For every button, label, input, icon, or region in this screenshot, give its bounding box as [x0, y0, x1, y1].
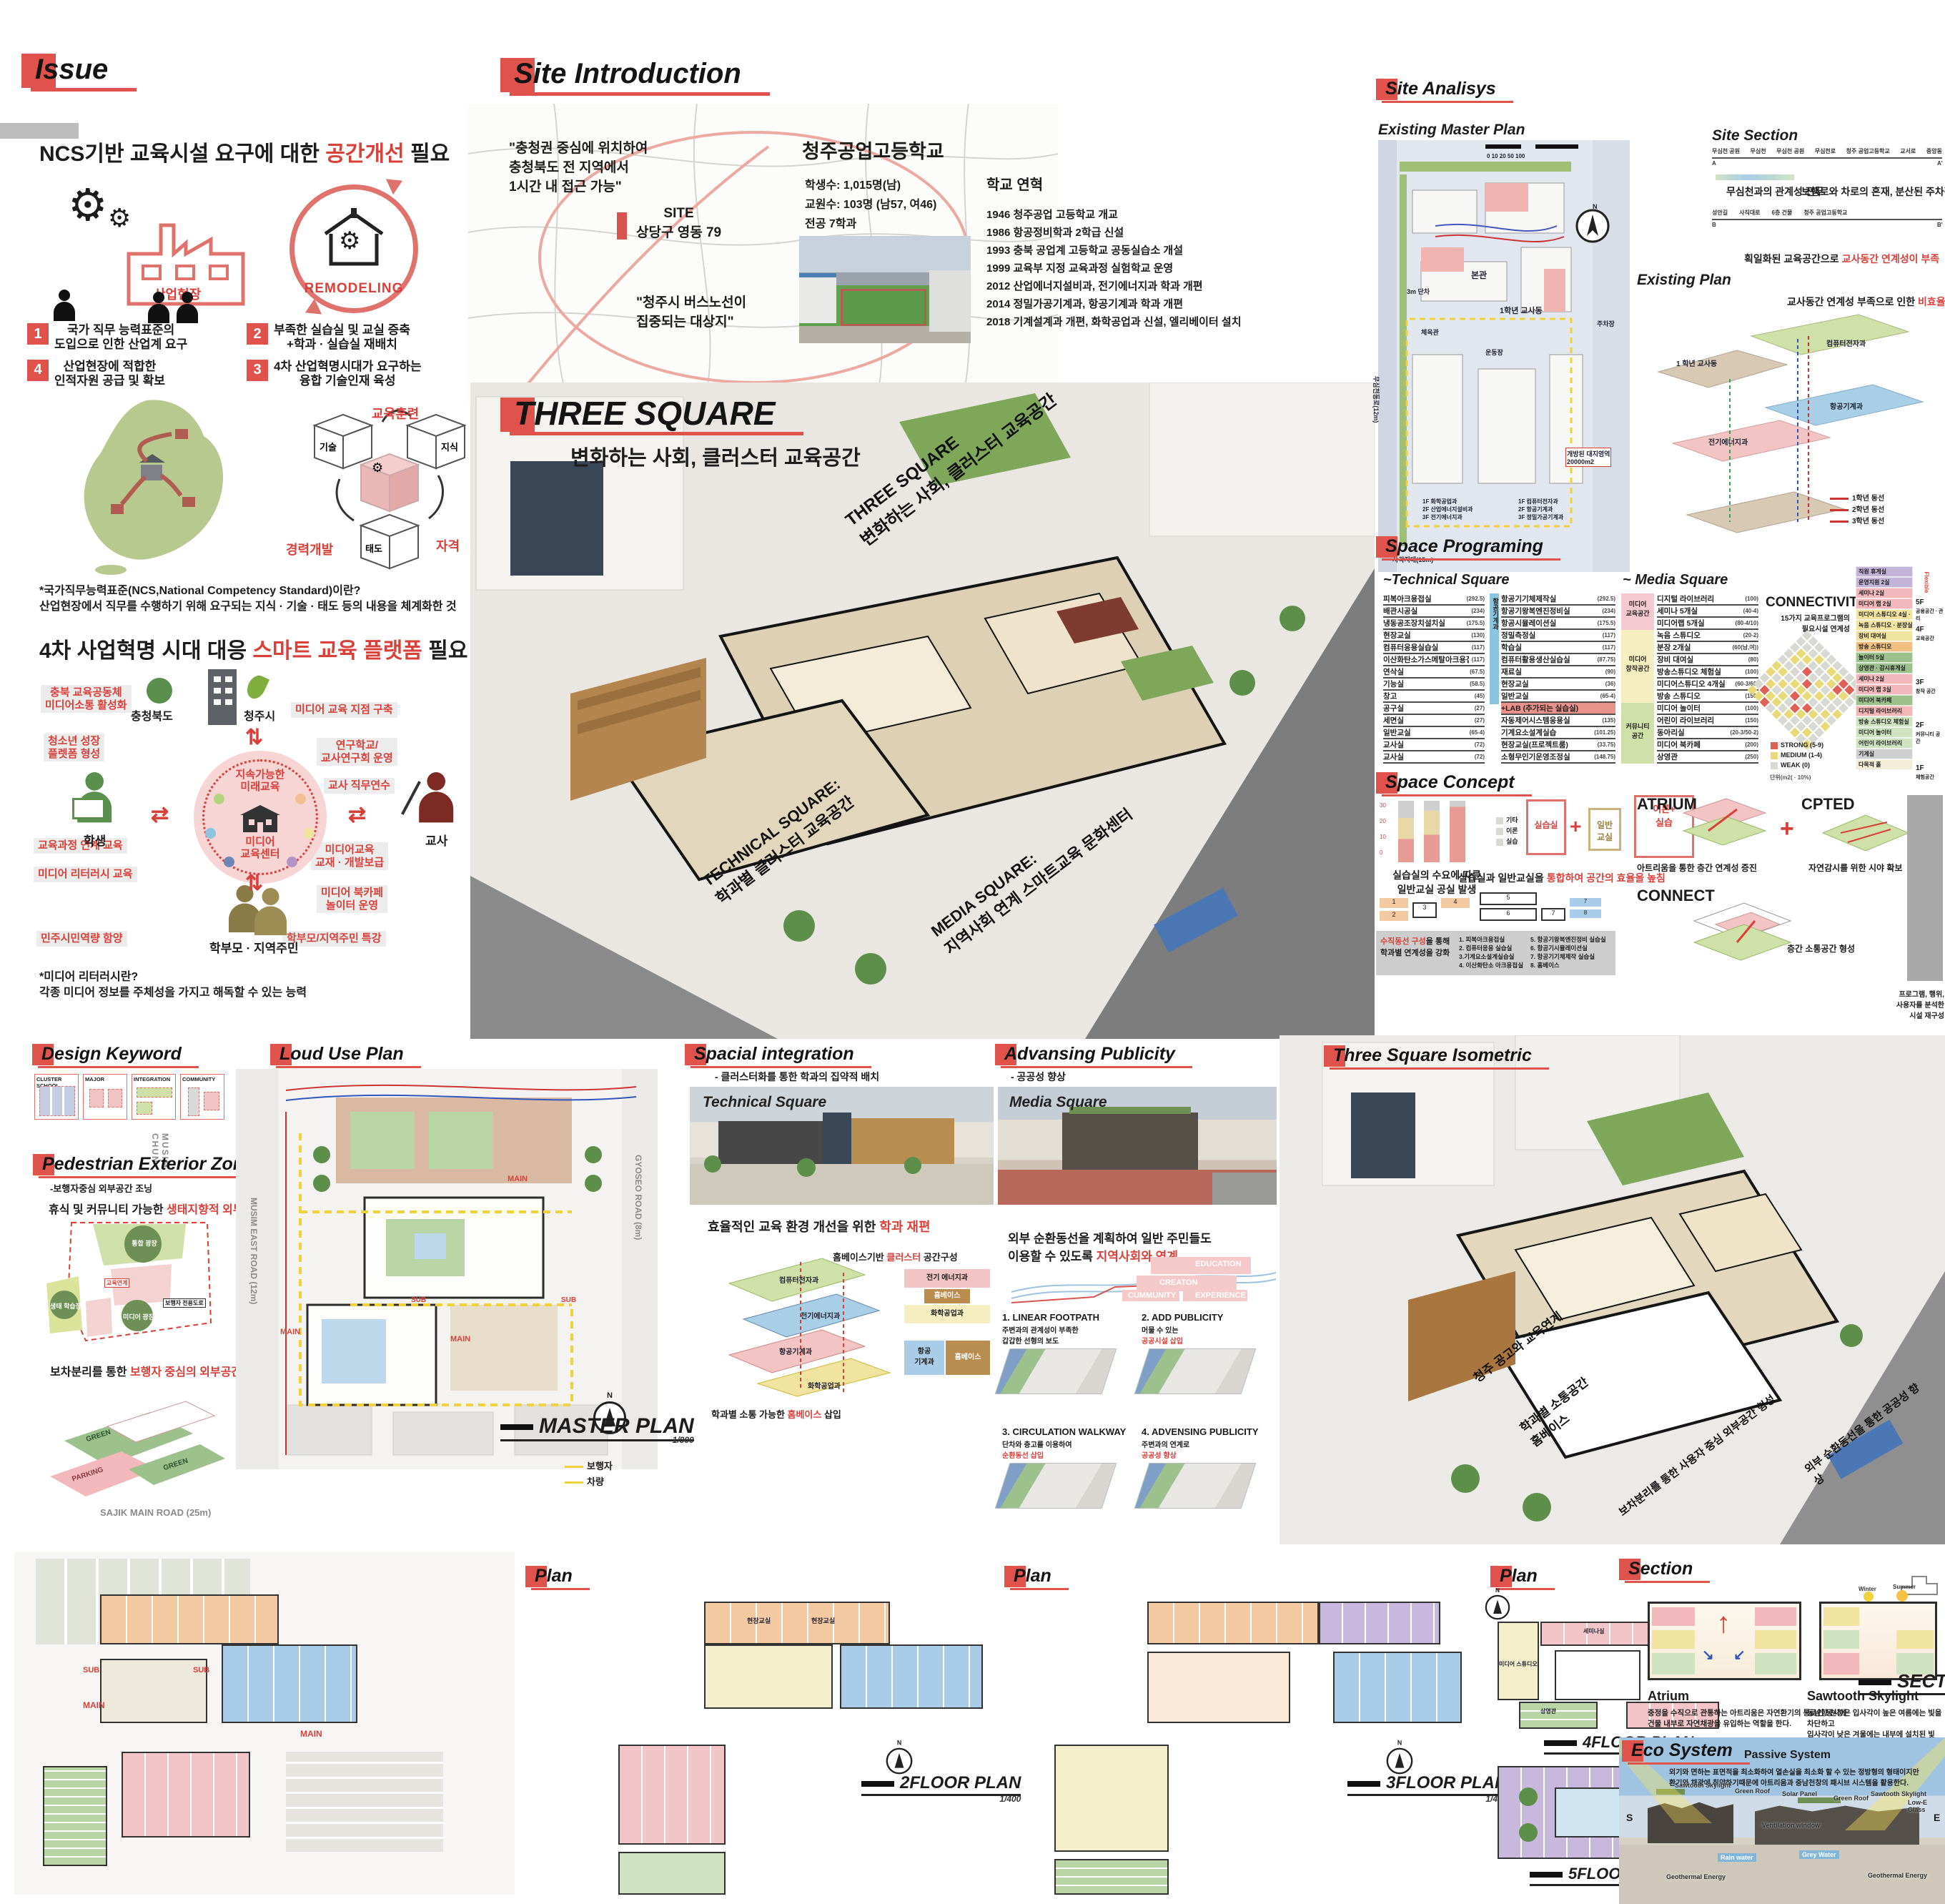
- plan3-label: 3FLOOR PLAN 1/400: [1347, 1773, 1507, 1796]
- step-body: 머물 수 있는: [1142, 1324, 1281, 1335]
- stack-room: 미디어 랩 3실: [1856, 684, 1913, 695]
- media-room-table: 디지털 라이브러리 (100) 세미나 5개실 (40-4) 미디어랩 5개실 …: [1657, 593, 1758, 764]
- room-row: 소형무인기운영조정실 (148.75): [1501, 751, 1615, 764]
- vertical-caption: 수직동선 구성을 통해 학과별 연계성을 강화: [1380, 935, 1452, 971]
- history-list: 1946 청주공업 고등학교 개교1986 항공정비학과 2학급 신설1993 …: [986, 206, 1222, 331]
- publicity-step: 1. LINEAR FOOTPATH 주변과의 관계성이 부족한 갑갑한 선형의…: [1002, 1312, 1142, 1426]
- sub-entrance-label: SUB: [83, 1666, 99, 1674]
- history-item: 2014 정밀가공기계과, 항공기계과 학과 개편: [986, 295, 1222, 313]
- room-name: 어린이 라이브러리: [1657, 715, 1714, 726]
- bar-legend: 기타이론실습: [1495, 815, 1518, 847]
- room-name: 동아리실: [1657, 727, 1685, 738]
- connectivity-subtitle: 15가지 교육프로그램의 필요시설 연계성: [1771, 612, 1850, 633]
- publicity-steps: 1. LINEAR FOOTPATH 주변과의 관계성이 부족한 갑갑한 선형의…: [1002, 1312, 1288, 1541]
- cheongju-logo: [244, 673, 269, 702]
- section-building: [0, 110, 16, 123]
- zone-label: 교육공간: [1916, 635, 1934, 642]
- stack-room: 운영지원 2실: [1856, 577, 1913, 588]
- school-photo: [799, 236, 971, 343]
- legend-item: 3학년 동선: [1830, 516, 1884, 528]
- room-row: 방송스튜디오 체험실 (100): [1657, 666, 1758, 679]
- stack-room: 미디어 스튜디오 4실 · 조정실: [1856, 609, 1913, 620]
- ncs-note-body: 산업현장에서 직무를 수행하기 위해 요구되는 지식 · 기술 · 태도 등의 …: [39, 596, 482, 613]
- tree: [704, 1155, 721, 1173]
- room-label: 현장교실: [811, 1616, 835, 1625]
- updown-arrow-icon: ⇅: [245, 725, 263, 750]
- room-name: 미디어 놀이터: [1657, 703, 1701, 714]
- plan-scale: 1/800: [673, 1435, 694, 1445]
- section-tick: 성안길: [1712, 209, 1728, 217]
- road: [1212, 1173, 1277, 1205]
- step-diagram: [1134, 1348, 1257, 1394]
- legend-chip: [1830, 509, 1849, 511]
- legend-line: 8. 홈베이스: [1530, 961, 1606, 970]
- room-area: (27): [1475, 705, 1485, 711]
- room-area: (150): [1745, 717, 1758, 724]
- eco-label-chip: Rain water: [1718, 1853, 1756, 1862]
- platform-heading-post: 필요: [422, 639, 468, 663]
- section1-caption2: 보행로와 차로의 혼재, 분산된 주차장으로인한 비합리적 외부공간: [1801, 184, 1945, 199]
- stack-room: 세미나 2실: [1856, 674, 1913, 684]
- section1-a: A: [1712, 160, 1716, 167]
- floor-label: 3F: [1916, 679, 1924, 686]
- orange-rooms: [1147, 1602, 1319, 1644]
- photo-field: [841, 289, 926, 326]
- platform-tag: 청소년 성장 플렛폼 형성: [44, 734, 104, 761]
- room-name: 상영관: [1657, 751, 1678, 762]
- platform-tag: 교사 직무연수: [324, 778, 395, 794]
- legend-label: MEDIUM (1-4): [1781, 751, 1822, 759]
- room: [1823, 1653, 1859, 1674]
- step-red: 순환동선 삽입: [1002, 1449, 1142, 1460]
- platform-heading: 4차 사업혁명 시대 대응 스마트 교육 플랫폼 필요: [39, 633, 467, 664]
- plan45-header-text: Plan: [1496, 1564, 1555, 1590]
- axon-legend: 1학년 동선 2학년 동선 3학년 동선: [1830, 493, 1884, 528]
- dept-stack2-label: 1F 컴퓨터전자과 2F 항공기계과 3F 정밀가공기계과: [1518, 498, 1563, 521]
- eco-label: Solar Panel: [1782, 1790, 1817, 1797]
- room-name: 항공기왕복엔진정비실: [1501, 606, 1570, 616]
- room-area: (40-4): [1743, 608, 1758, 614]
- block-2: 2: [1380, 911, 1408, 921]
- room-row: 현장교실(프로젝트룸) (33.75): [1501, 739, 1615, 751]
- section2-b2: B': [1937, 222, 1943, 228]
- publicity-step: 3. CIRCULATION WALKWAY 단차와 층고를 이용하여 순환동선…: [1002, 1426, 1142, 1541]
- teacher-icon: [417, 772, 455, 825]
- zone-label: 보행자 전용도로: [163, 1298, 206, 1308]
- legend-dot: [1771, 762, 1778, 769]
- issue-item: 2 부족한 실습실 및 교실 증축 +학과 · 실습실 재배치: [247, 323, 466, 352]
- existing-plan-caption: 교사동간 연계성 부족으로 인한 비효율적 동선: [1787, 295, 1945, 309]
- room-label: 미디어 스튜디오: [1499, 1660, 1538, 1668]
- section-building: [0, 100, 19, 110]
- connect-caption: 층간 소통공간 형성: [1787, 942, 1855, 955]
- platform-tag: 충북 교육공동체 미디어소통 활성화: [41, 685, 132, 713]
- stack-room: 상영관 · 감시휴게실: [1856, 663, 1913, 674]
- connectivity-matrix-wrap: [1764, 647, 1850, 733]
- actor-parents-label: 학부모 · 지역주민: [209, 938, 299, 956]
- room-row: 기계요소설계실습 (101.25): [1501, 727, 1615, 739]
- block-8a: 7: [1570, 898, 1601, 907]
- legend-line: 5. 항공기왕복엔진정비 실습실: [1530, 935, 1606, 944]
- room-row: 장비 대여실 (80): [1657, 654, 1758, 666]
- caption-red: 홈베이스: [788, 1409, 822, 1420]
- legend-label: 보행자: [587, 1461, 613, 1471]
- caption-red: 교사동간 연계성이 부족: [1842, 253, 1940, 265]
- bar-chart: [1398, 799, 1484, 862]
- atrium-diagram: [1676, 788, 1769, 856]
- room-name: +LAB (추가되는 실습실): [1501, 703, 1578, 714]
- room-area: (20-3/50-2): [1730, 729, 1758, 736]
- issue-item: 4 산업현장에 적합한 인적자원 공급 및 확보: [27, 360, 247, 389]
- technical-square-photo: Technical Square: [690, 1087, 994, 1205]
- plan-label-text: 2FLOOR PLAN: [900, 1773, 1021, 1792]
- room-row: 현장교실 (130): [1383, 630, 1485, 642]
- room-area: (60(남,여)): [1733, 643, 1759, 651]
- section-tick: 무심천 공원: [1712, 147, 1740, 155]
- caption-red: 통합하여 공간의 효율을 높침: [1547, 872, 1666, 884]
- school-stats: 학생수: 1,015명(남)교원수: 103명 (남57, 여46)전공 7학과: [805, 176, 976, 234]
- legend-chip: [565, 1481, 583, 1484]
- caption-pre: 실습실과 일반교실을: [1458, 872, 1547, 884]
- stack-room: 어린이 라이브러리: [1856, 738, 1913, 749]
- step-diagram: [995, 1348, 1117, 1394]
- integration-caption: 효율적인 교육 환경 개선을 위한 학과 재편: [708, 1217, 931, 1235]
- worker-icon: [52, 290, 76, 322]
- sub-entrance-label: SUB: [193, 1666, 209, 1674]
- tree: [1519, 1823, 1538, 1842]
- room-name: 분장 2개실: [1657, 642, 1691, 653]
- section1-line: [1712, 157, 1942, 159]
- room-area: (250): [1745, 754, 1758, 760]
- room-row: 창고 (45): [1383, 691, 1485, 703]
- node-dot: [214, 794, 224, 804]
- pink-rooms: [618, 1745, 726, 1845]
- section-tick: 사직대로: [1739, 209, 1760, 217]
- room-name: 피복아크용접실: [1383, 593, 1432, 604]
- axon-label: 컴퓨터전자과: [1826, 337, 1866, 348]
- room-name: 세면실: [1383, 715, 1404, 726]
- media-note-title: *미디어 리터러시란?: [39, 967, 138, 984]
- spacial-integration-subtitle: - 클러스터화를 통한 학과의 집약적 배치: [715, 1070, 879, 1084]
- room-row: 냉동공조장치설치실 (175.5): [1383, 618, 1485, 630]
- tree: [797, 1158, 816, 1177]
- room-row: 디지털 라이브러리 (100): [1657, 593, 1758, 606]
- building-icon: [202, 669, 242, 725]
- room-row: 공구실 (27): [1383, 703, 1485, 715]
- zone-label: 커뮤니티 공간: [1916, 731, 1944, 745]
- blue-rooms: [1333, 1652, 1462, 1723]
- room-row: 미디어 놀이터 (100): [1657, 703, 1758, 715]
- legend-item: 실습: [1495, 837, 1518, 847]
- bar-tick: 10: [1380, 834, 1397, 849]
- existing-master-plan-title: Existing Master Plan: [1378, 122, 1525, 139]
- existing-plan-axon: [1644, 307, 1944, 543]
- room-row: +LAB (추가되는 실습실): [1501, 703, 1615, 715]
- stack-room: 녹음 스튜디오 · 분장실 2개실: [1856, 620, 1913, 631]
- step-body: 주변과의 관계성이 부족한 갑갑한 선형의 보도: [1002, 1324, 1142, 1346]
- compass-n: N: [897, 1740, 901, 1747]
- step-title: 1. LINEAR FOOTPATH: [1002, 1312, 1142, 1323]
- eco-label: Geothermal Energy: [1666, 1873, 1726, 1880]
- dept-stack1-label: 1F 화학공업과 2F 산업에너지설비과 3F 전기에너지과: [1422, 498, 1473, 521]
- room-area: (292.5): [1598, 596, 1615, 602]
- room: [1823, 1630, 1859, 1649]
- label-bar: [1544, 1740, 1577, 1746]
- step-red: 공공시설 삽입: [1142, 1335, 1281, 1346]
- road-label-left: MUSIM EAST ROAD (12m): [249, 1198, 259, 1304]
- school-stat: 학생수: 1,015명(남): [805, 176, 976, 195]
- room-name: 정밀측정실: [1501, 630, 1535, 641]
- plan3-header-text: Plan: [1010, 1564, 1069, 1590]
- history-item: 1999 교육부 지정 교육과정 실험학교 운영: [986, 260, 1222, 277]
- label-bar: [1859, 1679, 1891, 1685]
- section-tick: 6층 건물: [1772, 209, 1793, 217]
- room-area: (117): [1472, 644, 1485, 651]
- room-label: 상영관: [1540, 1707, 1556, 1715]
- eco-label: Green Roof: [1735, 1787, 1770, 1795]
- room-area: (20-2): [1743, 632, 1758, 638]
- space-concept-header-text2: Space Concept: [1382, 771, 1532, 796]
- org-right-label: 청주시: [244, 706, 275, 724]
- publicity-step: 2. ADD PUBLICITY 머물 수 있는 공공시설 삽입: [1142, 1312, 1281, 1426]
- room-label: 세미나실: [1583, 1627, 1604, 1635]
- courtyard: [1555, 1650, 1640, 1700]
- room-area: (65-4): [1600, 693, 1615, 699]
- room-name: 학습실: [1501, 642, 1522, 653]
- cpted-caption: 자연감시를 위한 시야 확보: [1808, 862, 1902, 874]
- main-entrance-label: MAIN: [280, 1328, 300, 1336]
- actor-student-label: 학생: [84, 831, 106, 849]
- dept-strip: 항공기계과: [1490, 593, 1499, 704]
- hb-dept: 화학공업과: [904, 1305, 990, 1323]
- parking-area: [286, 1752, 443, 1852]
- block-5: 5: [1480, 892, 1537, 905]
- step-red: 공공성 향상: [1142, 1449, 1281, 1460]
- label-bar: [861, 1781, 894, 1787]
- legend-item: 2학년 동선: [1830, 505, 1884, 516]
- label-bar: [500, 1424, 533, 1430]
- cube-label-right: 자격: [436, 536, 460, 555]
- room-name: 항공기기체제작실: [1501, 593, 1556, 604]
- section-building: [0, 29, 50, 46]
- legend-dot: [1496, 828, 1503, 835]
- room-name: 현장교실: [1501, 679, 1529, 689]
- stack-room: 미디어 북카페: [1856, 695, 1913, 706]
- yellow-rooms: [1054, 1745, 1169, 1852]
- legend-chip: [565, 1466, 583, 1468]
- cpted-diagram: [1819, 801, 1912, 858]
- second-floor-plan: 현장교실 현장교실 N 2FLOOR PLAN 1/400: [533, 1594, 990, 1895]
- room-area: (72): [1475, 741, 1485, 748]
- room-area: (80): [1748, 656, 1758, 663]
- media-note-body: 각종 미디어 정보를 주체성을 가지고 해독할 수 있는 능력: [39, 982, 482, 1000]
- technical-square-title: ~Technical Square: [1383, 572, 1510, 588]
- axon-dept-label: 항공기계과: [779, 1346, 812, 1356]
- sawtooth-section: [1819, 1602, 1937, 1680]
- room: [1652, 1630, 1695, 1649]
- room-area: (58.5): [1470, 681, 1485, 687]
- site-label: SITE 상당구 영동 79: [636, 206, 721, 241]
- site-quote-1: "충청권 중심에 위치하여 충청북도 전 지역에서 1시간 내 접근 가능": [509, 137, 648, 195]
- legend-label: STRONG (5-9): [1781, 741, 1823, 749]
- cube-label-left: 경력개발: [286, 540, 333, 558]
- room-label: 현장교실: [747, 1616, 771, 1625]
- issue-item-number: 3: [247, 360, 268, 381]
- merge-caption: 실습실과 일반교실을 통합하여 공간의 효율을 높침: [1458, 871, 1666, 885]
- technical-room-table-1: 피복아크용접실 (292.5) 배관시공실 (234) 냉동공조장치설치실 (1…: [1383, 593, 1485, 764]
- room-name: 컴퓨터활용생산실습실: [1501, 654, 1570, 665]
- section-building: [0, 80, 11, 100]
- keyword-glyph: [137, 1102, 152, 1115]
- room-area: (117): [1603, 632, 1615, 638]
- issue-items: 1 국가 직무 능력표준의 도입으로 인한 산업계 요구 2 부족한 실습실 및…: [27, 323, 485, 396]
- legend-dot: [1771, 742, 1778, 749]
- master-plan-legend: 보행자 차량: [565, 1459, 613, 1490]
- compass-n: N: [1495, 1587, 1500, 1594]
- eco-s-marker: S: [1626, 1812, 1633, 1823]
- axon-label: 1 학년 교사동: [1676, 357, 1717, 368]
- classroom-box: 일반 교실: [1588, 808, 1621, 851]
- room-name: 현장교실(프로젝트룸): [1501, 739, 1568, 750]
- room-area: (130): [1471, 632, 1485, 638]
- terrace-label: CREATON: [1159, 1278, 1197, 1287]
- floor-label: 1F: [1916, 764, 1924, 772]
- step-title: 2. ADD PUBLICITY: [1142, 1312, 1281, 1323]
- korea-map-diagram: [61, 397, 247, 576]
- block-6: 6: [1480, 908, 1537, 921]
- terrace-label: EDUCATION: [1195, 1260, 1242, 1268]
- zone-label: 교육연계: [104, 1278, 129, 1288]
- stack-room: 기계실: [1856, 749, 1913, 759]
- room-row: 세미나 5개실 (40-4): [1657, 606, 1758, 618]
- dark-building: [718, 1121, 826, 1164]
- caption-pre: 획일화된 교육공간으로: [1744, 253, 1842, 265]
- room-name: 컴퓨터응용실습실: [1383, 642, 1438, 653]
- room-area: (117): [1472, 656, 1485, 663]
- photo-label: Media Square: [1009, 1094, 1107, 1111]
- open-area-label: 개방된 대지영역 20000m2: [1565, 448, 1611, 467]
- section2-caption: 획일화된 교육공간으로 교사동간 연계성이 부족: [1744, 252, 1939, 266]
- axon-label: 전기에너지과: [1708, 436, 1748, 447]
- legend-line: 7. 항공기기체제작 실습실: [1530, 952, 1606, 961]
- pedestrian-caption-2: 보차분리를 통한 보행자 중심의 외부공간 조닝: [50, 1362, 266, 1379]
- cube-face-knowledge: 지식: [441, 442, 458, 453]
- keyword-box-cluster-school: CLUSTER SCHOOL: [34, 1074, 79, 1120]
- room-area: (27): [1475, 717, 1485, 724]
- axon-dept-label: 전기에너지과: [801, 1310, 840, 1321]
- connectivity-title: CONNECTIVITY: [1766, 595, 1866, 611]
- presentation-board: { "colors":{"accent":"#e0524c","red_text…: [0, 0, 1945, 1904]
- legend-label: 실습: [1506, 838, 1518, 845]
- section-building: [0, 0, 29, 16]
- issue-item: 1 국가 직무 능력표준의 도입으로 인한 산업계 요구: [27, 323, 247, 352]
- blue-rooms: [840, 1644, 983, 1709]
- section-building: [0, 46, 17, 69]
- three-square-title: THREE SQUARE: [510, 395, 803, 435]
- zoning-diagram: 통합 광장 생태 학습장 미디어 광장 교육연계 보행자 전용도로: [43, 1215, 222, 1351]
- bar-ticks: 3020100: [1380, 802, 1397, 865]
- caption-red: 수직동선 구성: [1380, 937, 1426, 946]
- site-section-title: Site Section: [1712, 127, 1798, 144]
- media-category: 미디어 교육공간: [1621, 593, 1654, 630]
- program-bar-caption: 프로그램, 행위, 사용자를 분석한 시설 재구성: [1887, 988, 1944, 1020]
- section-building: [0, 16, 21, 29]
- room-name: 미디어스튜디오 4개실: [1657, 679, 1726, 689]
- plan2-header-text: Plan: [531, 1564, 590, 1590]
- vertical-circulation-box: 수직동선 구성을 통해 학과별 연계성을 강화 1. 피복아크용접실2. 컴퓨터…: [1376, 931, 1615, 975]
- floor-label: 5F: [1916, 598, 1924, 606]
- pedestrian-subtitle: -보행자중심 외부공간 조닝: [50, 1181, 152, 1195]
- history-item: 1946 청주공업 고등학교 개교: [986, 206, 1222, 224]
- third-floor-plan: N 3FLOOR PLAN 1/400: [1011, 1594, 1469, 1895]
- room-area: (234): [1471, 608, 1485, 614]
- chungbuk-logo: [147, 678, 172, 704]
- room-area: (67.5): [1470, 669, 1485, 675]
- caption-red: 비효율적 동선: [1918, 296, 1945, 307]
- step-diagram: [1134, 1463, 1257, 1509]
- platform-tag: 미디어 북카페 놀이터 운영: [317, 885, 387, 913]
- compass-n: N: [1593, 203, 1598, 210]
- caption-red: 보행자 중심의 외부공간: [130, 1366, 242, 1378]
- book-icon: [72, 798, 105, 819]
- room-area: (90): [1605, 669, 1615, 675]
- room-name: 공구실: [1383, 703, 1404, 714]
- legend-label: WEAK (0): [1781, 761, 1810, 769]
- issue-heading: NCS기반 교육시설 요구에 대한 공간개선 필요: [39, 136, 450, 167]
- zone-label: 창작 공간: [1916, 688, 1936, 695]
- legend-line: 2. 컴퓨터응용 실습실: [1459, 944, 1523, 952]
- gap-label: 3m 단차: [1407, 287, 1430, 296]
- room-name: 냉동공조장치설치실: [1383, 618, 1445, 628]
- node-dot: [304, 828, 315, 839]
- section-tick: 청주 공업고등학교: [1846, 147, 1890, 155]
- org-left-label: 충청북도: [131, 706, 173, 724]
- atrium-caption: 아트리움을 통한 층간 연계성 증진: [1637, 862, 1757, 874]
- issue-icons: ⚙ ⚙ 산업현장 ⚙ REMODELING: [39, 179, 468, 322]
- room-name: 방송 스튜디오: [1657, 691, 1701, 701]
- issue-item-number: 4: [27, 360, 49, 381]
- room-name: 재료실: [1501, 666, 1522, 677]
- room-row: 연삭실 (67.5): [1383, 666, 1485, 679]
- floor-marker: 2F커뮤니티 공간: [1916, 718, 1944, 745]
- room-area: (100): [1745, 596, 1758, 602]
- history-item: 1986 항공정비학과 2학급 신설: [986, 224, 1222, 242]
- room-row: 방송 스튜디오 (150): [1657, 691, 1758, 703]
- site-analysis-header-text: Site Analisys: [1382, 77, 1513, 103]
- core-block: [100, 1659, 207, 1723]
- existing-plan-title: Existing Plan: [1637, 272, 1731, 289]
- platform-heading-red: 스마트 교육 플랫폼: [252, 639, 422, 663]
- room-name: 방송스튜디오 체험실: [1657, 666, 1721, 677]
- room-row: 배관시공실 (234): [1383, 606, 1485, 618]
- connectivity-legend: STRONG (5-9) MEDIUM (1-4) WEAK (0): [1770, 740, 1823, 770]
- keyword-glyph: [204, 1092, 219, 1110]
- node-dot: [224, 857, 234, 867]
- media-floor-stack: 직원 휴게실운영지원 2실세미나 2실미디어 랩 2실미디어 스튜디오 4실 ·…: [1856, 566, 1913, 770]
- block-8b: 8: [1570, 909, 1601, 918]
- media-square-title: ~ Media Square: [1623, 572, 1728, 588]
- school-stat: 교원수: 103명 (남57, 여46): [805, 195, 976, 214]
- stack-room: 다목적 홀: [1856, 759, 1913, 770]
- room: [1755, 1653, 1796, 1674]
- section-tick: 교서로: [1900, 147, 1916, 155]
- eco-label: Geothermal Energy: [1868, 1872, 1927, 1879]
- glass-building: [823, 1113, 851, 1164]
- stack-room: 장비 대여실: [1856, 631, 1913, 641]
- stack-room: 방송 스튜디오 체험실: [1856, 716, 1913, 727]
- winter-label: Winter: [1859, 1586, 1876, 1592]
- compass-n: N: [607, 1391, 613, 1400]
